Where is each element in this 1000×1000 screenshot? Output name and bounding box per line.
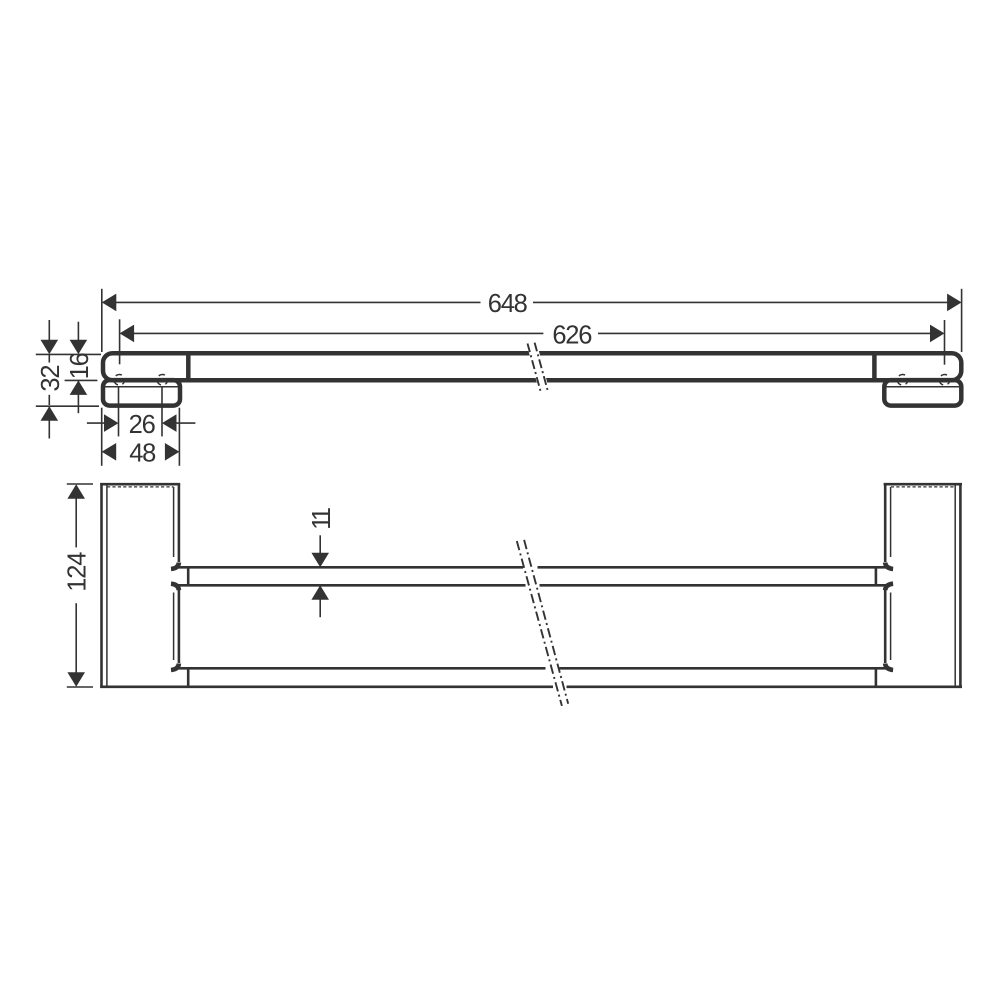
svg-text:48: 48 bbox=[129, 440, 156, 468]
svg-text:11: 11 bbox=[308, 508, 336, 530]
svg-text:648: 648 bbox=[488, 290, 528, 318]
svg-text:16: 16 bbox=[66, 352, 94, 379]
svg-text:32: 32 bbox=[37, 366, 65, 392]
svg-text:26: 26 bbox=[129, 411, 156, 439]
svg-text:626: 626 bbox=[552, 321, 592, 349]
svg-text:124: 124 bbox=[63, 552, 91, 592]
